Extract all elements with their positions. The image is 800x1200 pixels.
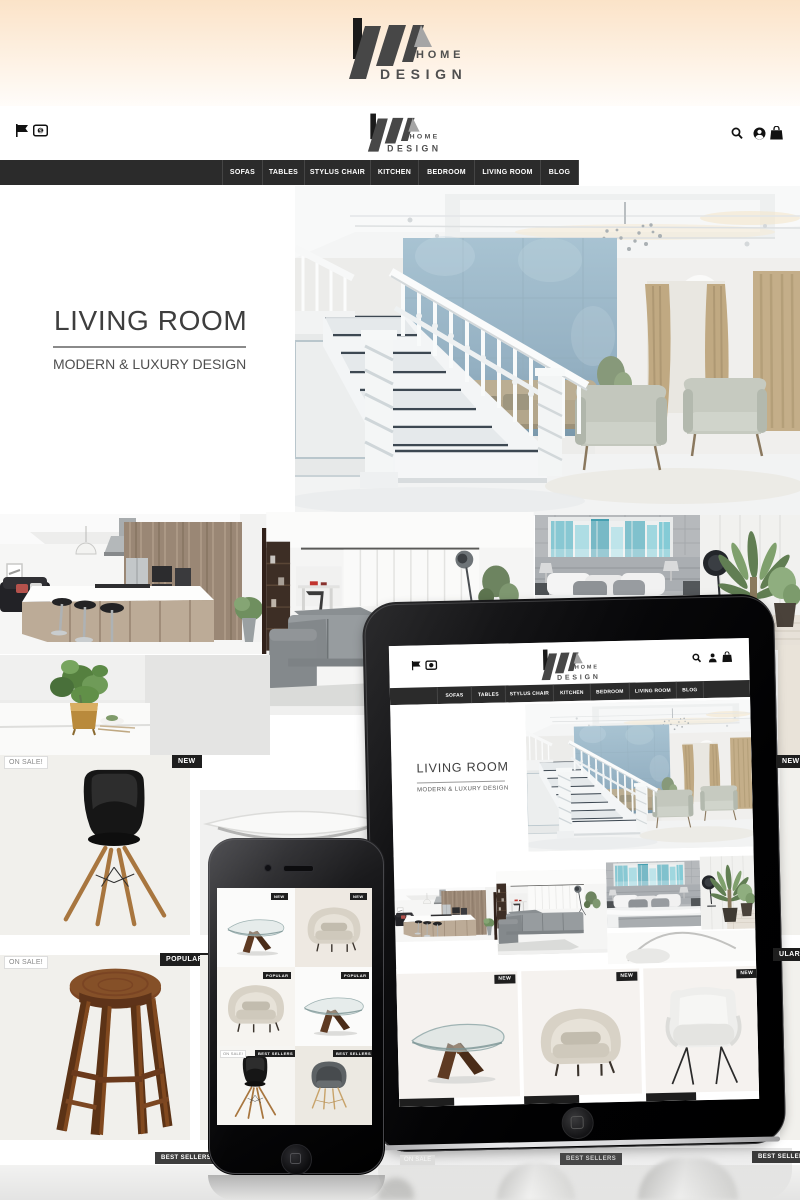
svg-text:$: $ xyxy=(39,128,43,135)
